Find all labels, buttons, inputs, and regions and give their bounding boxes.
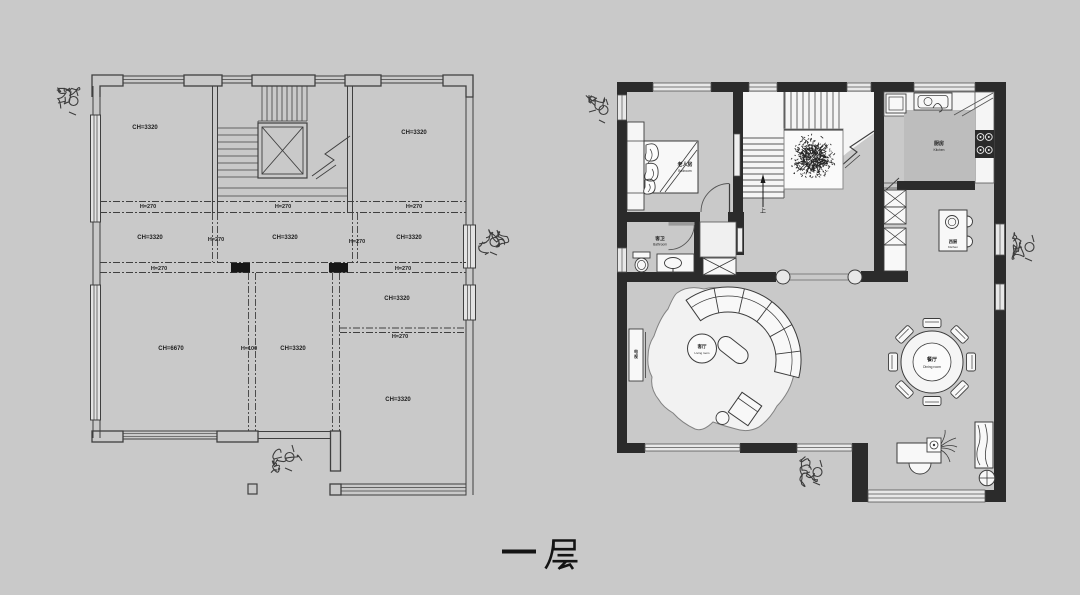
svg-text:Kitchen: Kitchen <box>948 245 958 249</box>
svg-text:CH=6670: CH=6670 <box>158 346 184 352</box>
svg-text:客厅: 客厅 <box>698 343 707 350</box>
svg-text:上: 上 <box>760 207 766 215</box>
svg-text:厨房: 厨房 <box>934 140 944 147</box>
svg-text:Bathroom: Bathroom <box>653 243 667 247</box>
svg-text:CH=3320: CH=3320 <box>396 235 422 241</box>
svg-text:CH=3320: CH=3320 <box>384 296 410 302</box>
svg-text:H=100: H=100 <box>241 346 257 352</box>
svg-text:CH=3320: CH=3320 <box>280 346 306 352</box>
svg-text:CH=3320: CH=3320 <box>272 235 298 241</box>
svg-text:CH=3320: CH=3320 <box>132 125 158 131</box>
svg-text:H=270: H=270 <box>392 334 408 340</box>
svg-text:餐厅: 餐厅 <box>926 356 937 363</box>
svg-text:客卫: 客卫 <box>654 235 665 242</box>
svg-text:西厨: 西厨 <box>949 238 958 245</box>
svg-text:H=270: H=270 <box>406 204 422 210</box>
svg-text:Bedroom: Bedroom <box>678 169 692 173</box>
svg-text:CH=3320: CH=3320 <box>137 235 163 241</box>
svg-text:CH=3320: CH=3320 <box>385 397 411 403</box>
svg-text:H=270: H=270 <box>140 204 156 210</box>
svg-text:Kitchen: Kitchen <box>934 148 945 152</box>
svg-text:Living room: Living room <box>695 351 711 355</box>
svg-text:老人房: 老人房 <box>676 161 692 168</box>
svg-text:Dining room: Dining room <box>923 365 941 369</box>
svg-text:视: 视 <box>634 353 638 359</box>
svg-text:H=270: H=270 <box>349 239 365 245</box>
svg-text:H=270: H=270 <box>208 237 224 243</box>
svg-text:H=270: H=270 <box>151 266 167 272</box>
svg-text:H=270: H=270 <box>395 266 411 272</box>
svg-text:H=270: H=270 <box>275 204 291 210</box>
svg-text:CH=3320: CH=3320 <box>401 130 427 136</box>
